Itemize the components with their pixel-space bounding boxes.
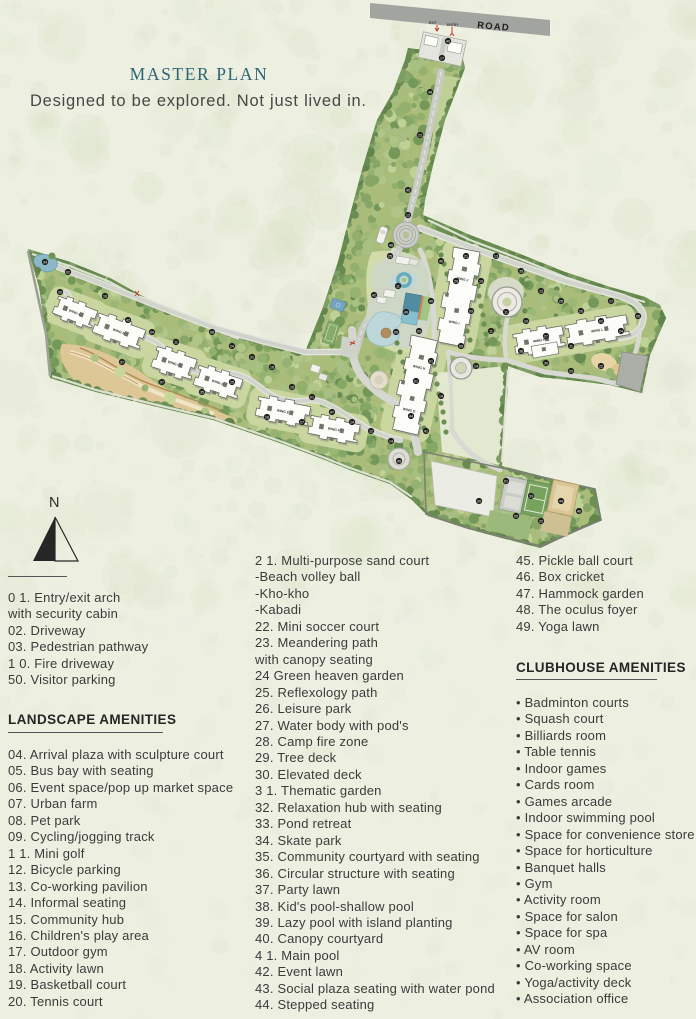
svg-text:11: 11 (504, 310, 508, 314)
svg-text:42: 42 (126, 318, 130, 322)
svg-text:42: 42 (372, 293, 376, 297)
svg-text:11: 11 (489, 329, 493, 333)
svg-text:14: 14 (439, 394, 443, 398)
svg-text:01: 01 (310, 395, 314, 399)
svg-text:11: 11 (569, 344, 573, 348)
svg-text:16: 16 (290, 385, 294, 389)
svg-text:ENTRY: ENTRY (447, 23, 459, 27)
svg-text:13: 13 (494, 254, 498, 258)
svg-text:27: 27 (300, 420, 304, 424)
svg-text:19: 19 (479, 279, 483, 283)
svg-text:09: 09 (459, 344, 463, 348)
svg-text:02: 02 (599, 319, 603, 323)
svg-text:47: 47 (330, 410, 334, 414)
svg-text:02: 02 (66, 270, 70, 274)
svg-text:14: 14 (350, 420, 354, 424)
svg-text:40: 40 (439, 259, 443, 263)
svg-text:EXIT: EXIT (429, 21, 437, 25)
svg-text:07: 07 (160, 380, 164, 384)
svg-text:22: 22 (539, 519, 543, 523)
svg-text:25: 25 (388, 254, 392, 258)
svg-text:40: 40 (429, 299, 433, 303)
svg-text:08: 08 (210, 330, 214, 334)
svg-text:23: 23 (418, 133, 422, 137)
svg-text:11: 11 (174, 340, 178, 344)
svg-text:01: 01 (429, 359, 433, 363)
svg-text:05: 05 (514, 514, 518, 518)
svg-text:45: 45 (406, 188, 410, 192)
svg-text:40: 40 (446, 39, 450, 43)
svg-text:ROAD: ROAD (477, 20, 511, 34)
svg-text:01: 01 (504, 479, 508, 483)
svg-text:37: 37 (120, 360, 124, 364)
svg-text:16: 16 (270, 365, 274, 369)
svg-text:44: 44 (409, 414, 413, 418)
svg-text:27: 27 (544, 334, 548, 338)
svg-text:20: 20 (569, 369, 573, 373)
svg-text:16: 16 (103, 294, 107, 298)
svg-text:05: 05 (636, 314, 640, 318)
svg-text:01: 01 (414, 379, 418, 383)
svg-text:24: 24 (619, 329, 623, 333)
svg-text:20: 20 (477, 499, 481, 503)
svg-text:12: 12 (369, 429, 373, 433)
svg-text:10: 10 (524, 319, 528, 323)
svg-text:09: 09 (417, 329, 421, 333)
svg-text:25: 25 (559, 299, 563, 303)
svg-text:12: 12 (406, 213, 410, 217)
svg-text:30: 30 (58, 290, 62, 294)
svg-text:21: 21 (464, 254, 468, 258)
svg-text:34: 34 (43, 260, 47, 264)
svg-text:13: 13 (539, 289, 543, 293)
svg-text:29: 29 (454, 279, 458, 283)
svg-text:22: 22 (599, 364, 603, 368)
svg-text:05: 05 (394, 330, 398, 334)
svg-text:49: 49 (404, 310, 408, 314)
svg-text:N: N (49, 495, 59, 511)
svg-text:45: 45 (397, 459, 401, 463)
svg-text:35: 35 (519, 269, 523, 273)
svg-text:04: 04 (150, 330, 154, 334)
svg-text:39: 39 (544, 361, 548, 365)
svg-text:18: 18 (265, 415, 269, 419)
svg-text:25: 25 (230, 380, 234, 384)
svg-text:17: 17 (609, 299, 613, 303)
svg-text:11: 11 (396, 284, 400, 288)
svg-text:31: 31 (250, 355, 254, 359)
svg-text:24: 24 (230, 344, 234, 348)
svg-text:41: 41 (424, 429, 428, 433)
svg-text:48: 48 (428, 90, 432, 94)
svg-text:38: 38 (519, 349, 523, 353)
svg-text:14: 14 (474, 364, 478, 368)
svg-text:46: 46 (577, 509, 581, 513)
svg-text:20: 20 (579, 309, 583, 313)
svg-text:44: 44 (559, 499, 563, 503)
svg-text:48: 48 (389, 243, 393, 247)
svg-text:35: 35 (200, 390, 204, 394)
svg-text:14: 14 (389, 439, 393, 443)
svg-text:09: 09 (469, 309, 473, 313)
svg-text:17: 17 (440, 56, 444, 60)
svg-text:39: 39 (529, 494, 533, 498)
